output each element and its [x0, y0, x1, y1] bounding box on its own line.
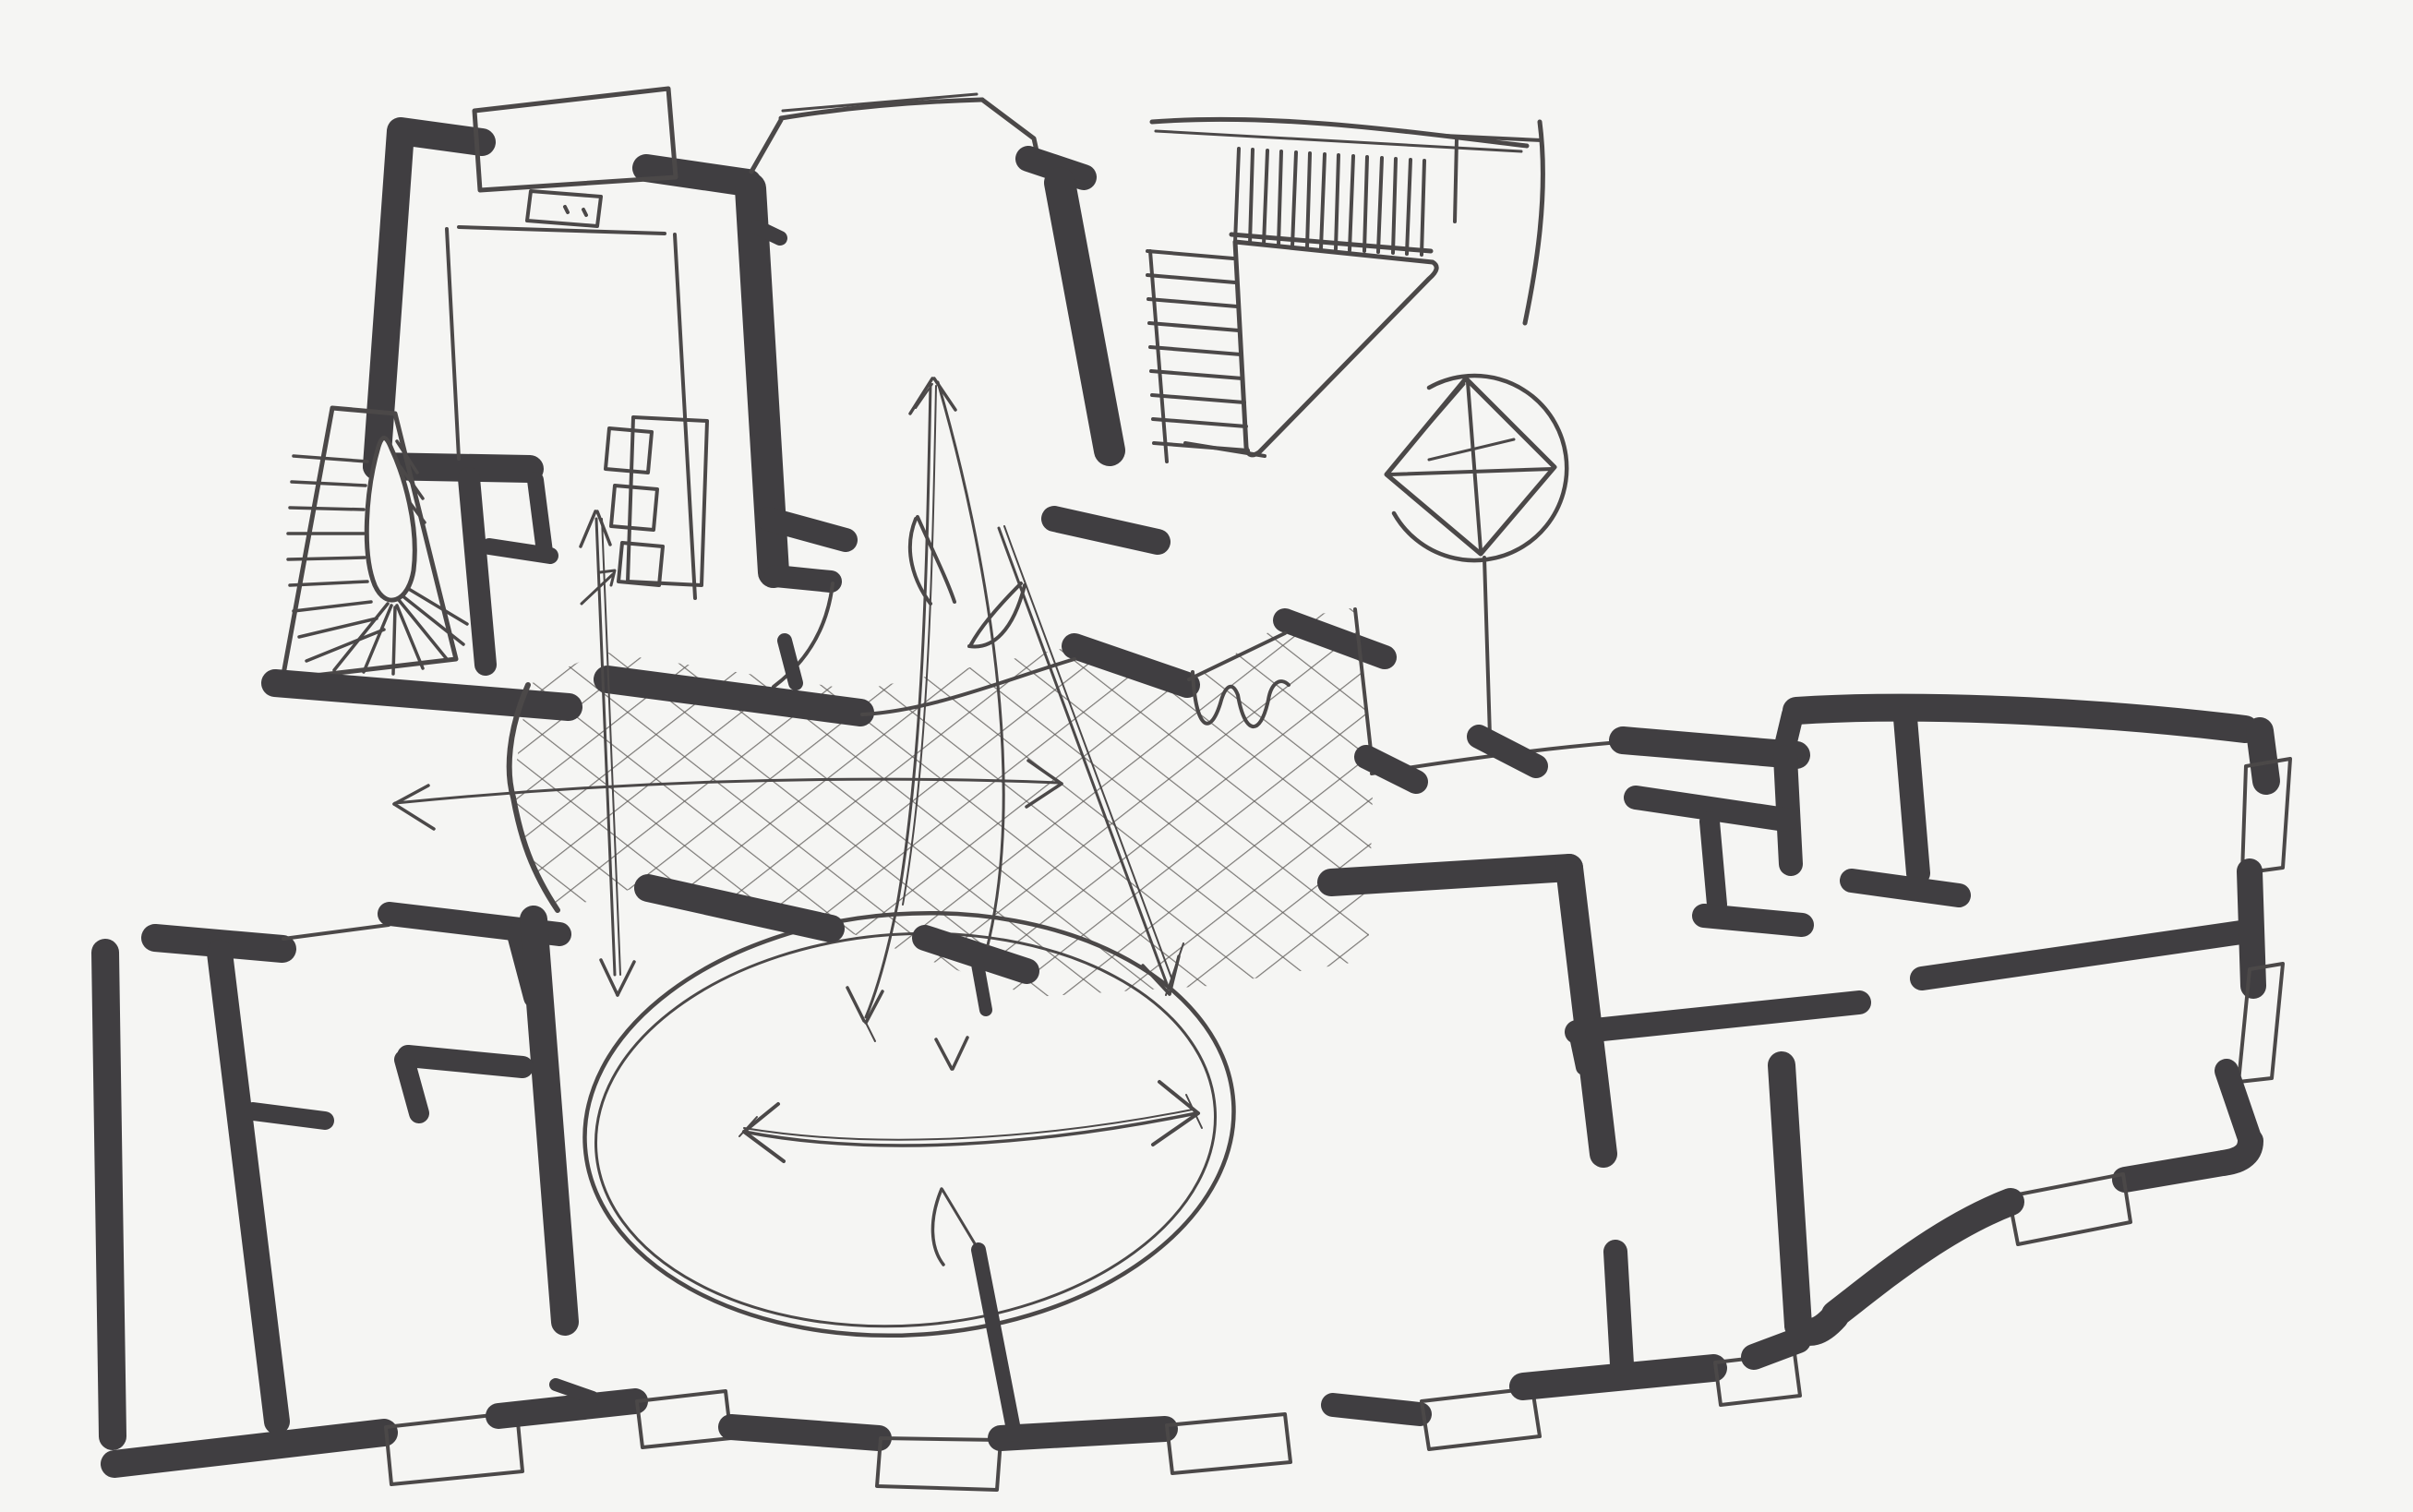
south-facade [114, 1340, 1800, 1490]
wall-tick [1577, 1032, 1584, 1067]
arrow-head [936, 1039, 952, 1069]
tread-line [1407, 160, 1411, 254]
wall-segment [646, 168, 748, 183]
wall-segment [408, 1056, 522, 1067]
stair-rail [1150, 251, 1167, 462]
wall-segment [2125, 1163, 2223, 1180]
shaft-cross [1390, 469, 1553, 474]
arrow-head [597, 511, 610, 545]
wall-segment [2260, 731, 2266, 781]
tread-line [1152, 395, 1244, 402]
wall-segment [1331, 868, 1569, 882]
sketch-page [0, 0, 2413, 1512]
window-rect [2009, 1174, 2131, 1244]
arrow-head [932, 1189, 943, 1265]
wall-segment [404, 1060, 419, 1113]
tread-line [1321, 154, 1325, 248]
arrow-head [847, 988, 864, 1021]
wall-segment [1852, 881, 1959, 895]
wall-segment [1782, 1065, 1798, 1326]
tread-line [1235, 149, 1239, 243]
wall-segment [1704, 916, 1802, 925]
wall-segment [1615, 1252, 1622, 1364]
arrow-head [953, 1038, 967, 1069]
shelf-box [611, 486, 657, 530]
window-rect [877, 1438, 1001, 1490]
tread-line [1153, 419, 1246, 426]
stair-rail [1525, 122, 1543, 323]
tread-line [1336, 155, 1339, 249]
floorplan-sketch [0, 0, 2413, 1512]
arrow-head [942, 1190, 976, 1245]
wall-knob [757, 227, 780, 238]
wall-segment [1798, 1316, 1835, 1332]
wall-dash [1001, 1429, 1165, 1438]
tread-line [1350, 156, 1353, 250]
arrow-head [866, 1023, 875, 1041]
inner-wall-line [675, 234, 695, 598]
elevator-shaft [1387, 376, 1567, 737]
tread-line [1150, 347, 1241, 354]
wall-segment [469, 478, 486, 665]
tread-line [1292, 152, 1296, 246]
wall-segment [1569, 868, 1603, 1154]
inner-wall-line [447, 229, 459, 459]
label-dot [583, 210, 586, 215]
west-rooms [105, 914, 565, 1436]
stair-tread [393, 607, 395, 674]
wall-segment [1796, 708, 2245, 729]
wall-dash [1623, 740, 1796, 755]
wall-tick [556, 1385, 593, 1398]
tread-line [1151, 371, 1243, 378]
stair-tread [290, 508, 364, 510]
tread-line [1422, 161, 1424, 255]
wall-segment [1060, 183, 1110, 450]
wall-line [1455, 138, 1457, 222]
stair-hall [1147, 119, 1543, 462]
tread-line [1149, 323, 1239, 330]
arrow-head [394, 804, 434, 829]
tread-line [1393, 159, 1396, 253]
stair-run-edge [1156, 131, 1521, 151]
wall-dash [1479, 737, 1536, 766]
window-rect [637, 1391, 731, 1447]
tread-line [1148, 299, 1237, 306]
wall-dash [498, 1401, 635, 1416]
tread-line [1307, 153, 1310, 247]
wall-segment [1922, 932, 2241, 978]
window-rect [1167, 1414, 1291, 1473]
wall-segment [1905, 718, 1918, 873]
arrow-head [1186, 1095, 1202, 1128]
arrow-shaft [744, 1113, 1196, 1146]
wall-line [1484, 558, 1490, 737]
wall-segment [220, 953, 277, 1422]
wall-segment [1577, 1002, 1859, 1032]
shelf-box [606, 428, 652, 473]
door-leaf [969, 585, 1025, 646]
wall-segment [1710, 822, 1717, 905]
landing-triangle [1235, 242, 1436, 455]
wall-tick [253, 1111, 325, 1121]
center-hall-room [751, 94, 1158, 646]
wall-segment [775, 576, 831, 582]
inner-wall-line [459, 227, 665, 234]
tread-line [1279, 151, 1281, 246]
tread-line [1147, 275, 1235, 282]
wall-segment [105, 953, 113, 1436]
door-gap-line [283, 925, 389, 939]
shaft-cross [1468, 382, 1481, 550]
wall-segment [1835, 1202, 2011, 1314]
wall-segment [377, 131, 482, 466]
stair-tread [294, 602, 371, 611]
wall-segment [534, 919, 565, 1322]
arrow-shaft-thick [978, 1250, 1014, 1434]
label-dot [565, 207, 568, 212]
stair-tread [288, 558, 365, 559]
tread-line [1378, 158, 1382, 252]
wall-segment [1054, 519, 1158, 542]
wall-dash [731, 1427, 879, 1438]
wall-segment [535, 480, 545, 552]
wall-dash [1333, 1405, 1420, 1414]
bay-line [751, 120, 781, 172]
wall-dash [1366, 757, 1416, 782]
arrow-head [744, 1104, 778, 1132]
stair-tread [294, 456, 367, 462]
tread-line [1147, 251, 1233, 258]
arrow-shaft [744, 1110, 1193, 1140]
arrow-head [581, 511, 595, 546]
tread-line [1264, 150, 1267, 245]
note-stroke [582, 574, 613, 604]
shelf-box [618, 543, 663, 585]
shelf-rect [628, 417, 707, 585]
wall-dash [114, 1433, 384, 1464]
wall-dash [1754, 1340, 1798, 1357]
tread-line [1364, 157, 1367, 251]
east-wing [1331, 708, 2290, 1364]
stair-tread [292, 482, 366, 486]
tread-line [1250, 150, 1253, 244]
